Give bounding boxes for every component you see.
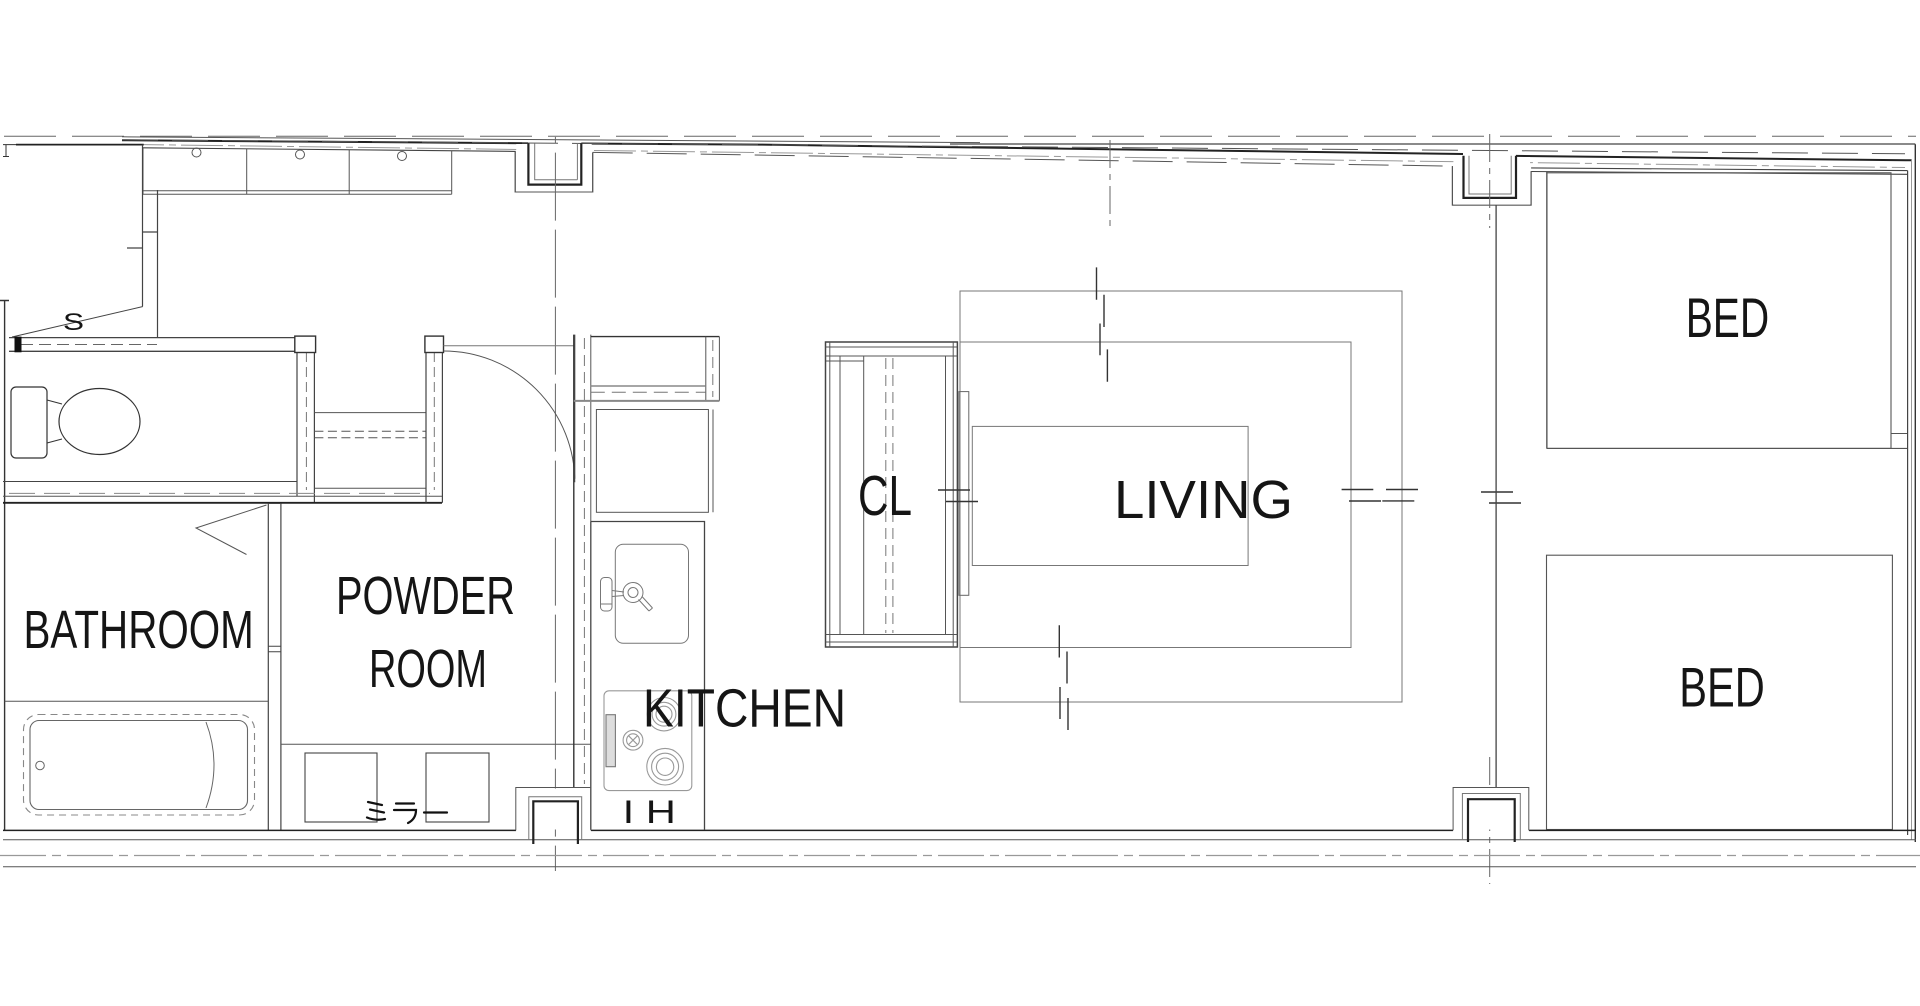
- svg-text:POWDER: POWDER: [336, 566, 515, 626]
- svg-text:KITCHEN: KITCHEN: [643, 679, 846, 739]
- svg-text:LIVING: LIVING: [1114, 470, 1293, 530]
- svg-text:I H: I H: [623, 794, 676, 830]
- svg-text:BED: BED: [1679, 656, 1765, 719]
- svg-text:CL: CL: [858, 464, 912, 528]
- svg-text:ROOM: ROOM: [369, 639, 487, 699]
- svg-text:BED: BED: [1686, 286, 1770, 349]
- svg-text:BATHROOM: BATHROOM: [24, 600, 254, 660]
- svg-text:S: S: [63, 309, 84, 336]
